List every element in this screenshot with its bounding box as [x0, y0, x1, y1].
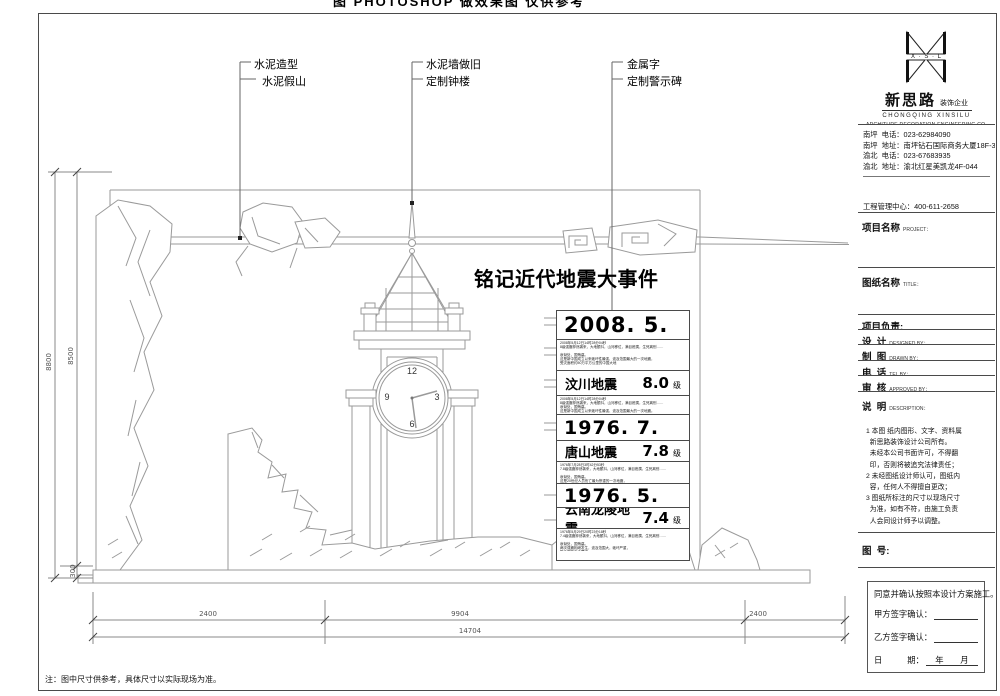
earthquake-monument-panel: 2008. 5. 12 2008年5月12日14时28分04秒 8级强震猝然袭来…	[556, 310, 690, 561]
title-block: X · S · L 新思路 装饰企业 CHONGQING XINSILU ARC…	[858, 13, 995, 690]
agreement-box: 同意并确认按照本设计方案施工。 甲方签字确认： 乙方签字确认： 日 期：年 月	[867, 581, 985, 673]
event-description: 1976年7月28日3时42分53秒 7.8级强震猝然袭来，大地颤抖，山河移位，…	[557, 462, 689, 484]
contact-line: 渝北 电话：023-67683935	[863, 151, 990, 162]
event-name: 云南龙陵地震	[565, 508, 642, 529]
company-name-row: 新思路 装饰企业	[858, 89, 995, 110]
event-description: 1976年5月29日20时23分18秒 7.4级强震猝然袭来，大地颤抖，山河移位…	[557, 529, 689, 551]
wall-main-title: 铭记近代地震大事件	[474, 263, 659, 292]
callout-cement-shape: 水泥造型	[254, 56, 298, 72]
dim-bottom-left: 2400	[180, 610, 236, 618]
party-a-signature-row: 甲方签字确认：	[874, 608, 978, 620]
date-row: 日 期：年 月	[874, 654, 978, 666]
event-name: 唐山地震	[565, 442, 617, 461]
party-b-signature-row: 乙方签字确认：	[874, 631, 978, 643]
project-leader-field: 项目负责:	[858, 315, 995, 330]
logo-underline	[882, 110, 972, 111]
contact-line: 南坪 电话：023-62984090	[863, 130, 990, 141]
dim-bottom-right: 2400	[730, 610, 786, 618]
designed-by-field: 设 计DESIGNED BY：	[858, 330, 995, 345]
event-magnitude: 7.4级	[642, 509, 681, 527]
event-name-row: 汶川地震 8.0级	[557, 371, 689, 396]
drawing-sheet: 图 PHOTOSHOP 做效果图 仅供参考 水泥造型 水泥假山 水泥墙做旧 定制…	[0, 0, 1000, 696]
approved-by-field: 审 核APPROVED BY：	[858, 376, 995, 392]
signature-line	[934, 609, 978, 620]
event-name-row: 云南龙陵地震 7.4级	[557, 508, 689, 529]
callout-metal-letters: 金属字	[627, 56, 660, 72]
contact-line: 南坪 地址：南坪钻石国际商务大厦18F-3	[863, 141, 990, 152]
event-name-row: 唐山地震 7.8级	[557, 441, 689, 462]
event-description: 2008年5月12日14时28分04秒 8级强震猝然袭来，大地颤抖，山河移位，满…	[557, 396, 689, 415]
dim-left-lower: 300	[69, 556, 77, 586]
agreement-section: 同意并确认按照本设计方案施工。 甲方签字确认： 乙方签字确认： 日 期：年 月	[858, 568, 995, 690]
sheet-title-field: 图纸名称TITLE：	[858, 268, 995, 315]
clock-number-6: 6	[404, 419, 420, 429]
contact-line: 工程管理中心：400-611-2658	[863, 202, 990, 213]
event-date: 1976. 5. 29	[557, 484, 689, 508]
signature-line	[934, 632, 978, 643]
callout-cement-rockery: 水泥假山	[262, 73, 306, 89]
event-description: 2008年5月12日14时28分04秒 8级强震猝然袭来，大地颤抖，山河移位，满…	[557, 340, 689, 371]
description-section: 说 明DESCRIPTION： 1 本图 纸内图形、文字、资料属 新思路装饰设计…	[858, 392, 995, 533]
sheet-border	[38, 13, 997, 691]
dim-left-upper: 8500	[67, 341, 75, 371]
event-date: 2008. 5. 12	[557, 311, 689, 340]
callout-custom-clock-tower: 定制钟楼	[426, 73, 470, 89]
event-name: 汶川地震	[565, 374, 617, 393]
dim-left-total: 8800	[45, 347, 53, 377]
contact-info-section: 南坪 电话：023-62984090 南坪 地址：南坪钻石国际商务大厦18F-3…	[858, 125, 995, 213]
agreement-statement: 同意并确认按照本设计方案施工。	[874, 588, 978, 600]
description-notes: 1 本图 纸内图形、文字、资料属 新思路装饰设计公司所有。 未经本公司书面许可，…	[858, 420, 995, 527]
contact-line: 渝北 地址：渝北红星美凯龙4F-044	[863, 162, 990, 173]
clock-number-9: 9	[379, 392, 395, 402]
clock-number-3: 3	[429, 392, 445, 402]
drawing-number-field: 图 号:	[858, 533, 995, 568]
logo-xsl-text: X · S · L	[858, 54, 995, 60]
callout-custom-warning-monument: 定制警示碑	[627, 73, 682, 89]
company-name: 新思路	[885, 89, 936, 110]
clock-number-12: 12	[404, 366, 420, 376]
event-date: 1976. 7. 28	[557, 415, 689, 441]
management-center-block: 工程管理中心：400-611-2658 南坪 地址：南坪钻石国际商务大厦10F-…	[863, 176, 990, 213]
company-logo-section: X · S · L 新思路 装饰企业 CHONGQING XINSILU ARC…	[858, 13, 995, 125]
dim-bottom-mid: 9904	[430, 610, 490, 618]
event-magnitude: 8.0级	[642, 374, 681, 392]
dim-bottom-total: 14704	[440, 627, 500, 635]
project-name-field: 项目名称PROJECT：	[858, 213, 995, 268]
event-magnitude: 7.8级	[642, 442, 681, 460]
sheet-reference-note: 注：图中尺寸供参考，具体尺寸以实际现场为准。	[45, 674, 221, 685]
top-clipped-caption: 图 PHOTOSHOP 做效果图 仅供参考	[333, 0, 663, 8]
company-en-1: CHONGQING XINSILU	[858, 113, 995, 119]
company-suffix: 装饰企业	[940, 98, 968, 108]
drawn-by-field: 制 图DRAWN BY：	[858, 345, 995, 361]
callout-aged-cement-wall: 水泥墙做旧	[426, 56, 481, 72]
telephone-field: 电 话TEL BY：	[858, 361, 995, 376]
